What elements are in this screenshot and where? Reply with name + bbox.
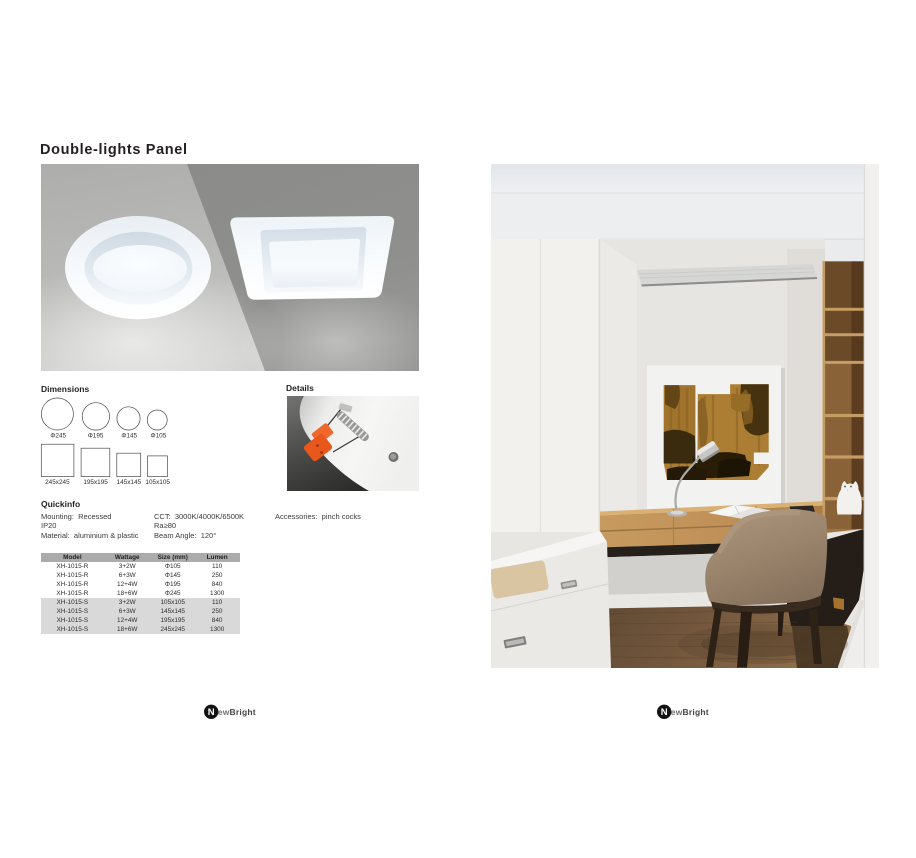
svg-text:Φ245: Φ245 [50,433,66,440]
svg-text:145x145: 145x145 [117,479,142,486]
svg-text:245x245: 245x245 [45,479,70,486]
svg-text:Φ195: Φ195 [88,433,104,440]
svg-text:Φ105: Φ105 [151,433,167,440]
svg-text:N: N [208,707,215,718]
svg-text:Φ145: Φ145 [121,433,137,440]
svg-text:ewBright: ewBright [218,706,256,716]
svg-text:ewBright: ewBright [670,706,708,716]
svg-text:N: N [660,707,667,718]
svg-text:105x105: 105x105 [145,479,170,486]
svg-text:195x195: 195x195 [83,479,108,486]
